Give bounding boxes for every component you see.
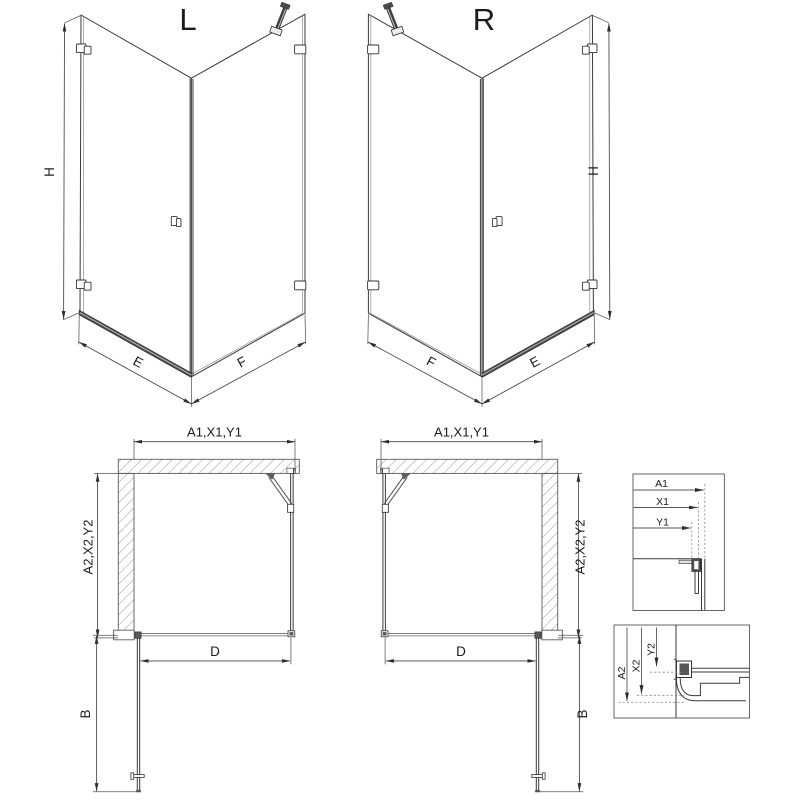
view-title-left: L: [179, 2, 196, 37]
plan-dim-depth-left: A2,X2,Y2: [81, 520, 96, 575]
wall-side-left-plan: [118, 473, 134, 637]
dim-label-f-right: F: [424, 353, 438, 370]
plan-dim-width-left: A1,X1,Y1: [187, 425, 242, 440]
plan-view-right: A1,X1,Y1 A2,X2,Y2 D B: [377, 425, 590, 793]
detail-width-frame: [633, 474, 724, 611]
detail-label-x2: X2: [631, 659, 643, 672]
iso-view-left: L H E F: [42, 2, 306, 407]
detail-box-width: A1 X1 Y1: [633, 474, 724, 611]
wall-bracket-profile: [679, 560, 694, 563]
detail-box-depth: A2 X2 Y2: [614, 625, 750, 718]
view-title-right: R: [473, 2, 495, 37]
iso-left-geometry: [63, 2, 306, 407]
detail-label-x1: X1: [656, 496, 669, 508]
glass-clamp-slot: [694, 561, 698, 569]
wall-side-right-plan: [542, 473, 558, 637]
detail-label-y2: Y2: [646, 643, 658, 656]
plan-dim-entry-left: D: [210, 644, 220, 659]
technical-drawing-sheet: L H E F R H F E A1,X1,Y1 A2,X2,Y2 D B A1…: [0, 0, 800, 800]
iso-view-right: R H F E: [368, 2, 611, 407]
dim-label-height-left: H: [42, 167, 57, 177]
detail-label-a2: A2: [616, 666, 628, 679]
dim-label-height-right: H: [586, 166, 601, 176]
wall-top-right-plan: [377, 459, 558, 473]
plan-dim-door-right: B: [575, 709, 590, 718]
shower-enclosure-diagram: L H E F R H F E A1,X1,Y1 A2,X2,Y2 D B A1…: [0, 0, 800, 800]
dim-label-e-right: E: [527, 353, 542, 370]
dim-label-f-left: F: [235, 353, 249, 370]
plan-dim-width-right: A1,X1,Y1: [434, 425, 489, 440]
plan-dim-door-left: B: [78, 709, 93, 718]
tray-glass-clamp-core: [680, 664, 690, 676]
detail-label-y1: Y1: [656, 516, 669, 528]
dim-label-e-left: E: [131, 353, 146, 370]
plan-dim-depth-right: A2,X2,Y2: [573, 520, 588, 575]
plan-view-left: A1,X1,Y1 A2,X2,Y2 D B: [78, 425, 299, 793]
iso-right-geometry: [368, 2, 611, 407]
wall-top-left-plan: [118, 459, 299, 473]
detail-label-a1: A1: [655, 478, 668, 490]
plan-dim-entry-right: D: [456, 644, 466, 659]
